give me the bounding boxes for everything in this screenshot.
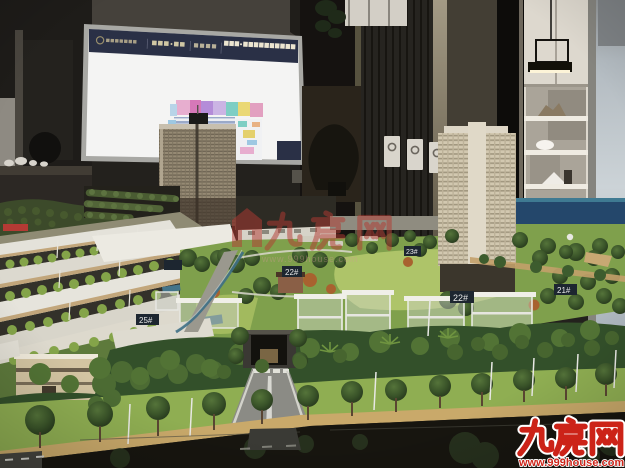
svg-text:www.999house.com: www.999house.com — [518, 457, 625, 468]
svg-text:www.999house.com: www.999house.com — [261, 254, 359, 264]
